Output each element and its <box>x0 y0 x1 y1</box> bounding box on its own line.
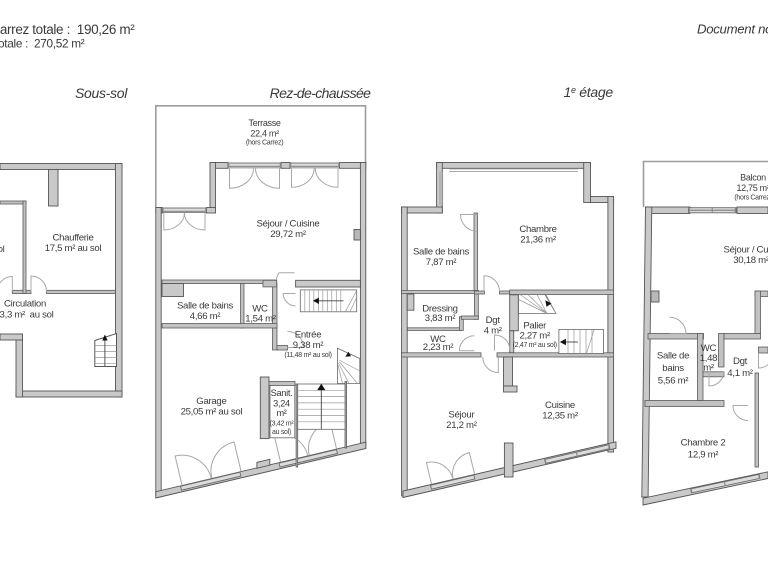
svg-text:(hors Carrez): (hors Carrez) <box>734 195 768 202</box>
svg-text:30,18 m²: 30,18 m² <box>733 255 768 266</box>
svg-text:4,1 m²: 4,1 m² <box>727 368 753 379</box>
svg-text:29,72 m²: 29,72 m² <box>270 229 307 240</box>
svg-text:25,05 m² au sol: 25,05 m² au sol <box>181 407 243 418</box>
svg-text:Sanit.: Sanit. <box>271 388 293 398</box>
svg-text:3,24: 3,24 <box>273 398 290 408</box>
svg-text:13,3 m² au sol: 13,3 m² au sol <box>0 309 54 320</box>
svg-text:(11,48 m² au sol): (11,48 m² au sol) <box>284 352 331 359</box>
svg-text:au sol): au sol) <box>272 429 291 436</box>
svg-text:5,56 m²: 5,56 m² <box>658 376 690 387</box>
svg-text:Dgt: Dgt <box>733 356 748 367</box>
svg-text:m²: m² <box>703 363 715 374</box>
svg-text:Rez-de-chaussée: Rez-de-chaussée <box>270 85 372 101</box>
svg-text:Chambre 2: Chambre 2 <box>681 438 726 449</box>
svg-text:Séjour / Cuisine: Séjour / Cuisine <box>257 219 320 230</box>
svg-text:m²: m² <box>276 408 286 418</box>
svg-text:12,9 m²: 12,9 m² <box>688 450 720 461</box>
svg-text:Salle de bains: Salle de bains <box>413 247 470 258</box>
svg-text:Séjour: Séjour <box>448 410 475 421</box>
svg-text:2,23 m²: 2,23 m² <box>423 342 455 353</box>
svg-text:Salle de: Salle de <box>657 351 689 362</box>
svg-text:3,83 m²: 3,83 m² <box>425 313 457 324</box>
svg-text:12,35 m²: 12,35 m² <box>542 411 579 422</box>
svg-text:9,38 m²: 9,38 m² <box>293 340 325 351</box>
svg-text:(2,47 m² au sol): (2,47 m² au sol) <box>513 342 557 349</box>
svg-text:Balcon: Balcon <box>740 173 766 183</box>
svg-text:9,8 m² au sol: 9,8 m² au sol <box>0 244 5 255</box>
svg-text:Garage: Garage <box>196 396 226 407</box>
svg-text:Chaufferie: Chaufferie <box>52 233 93 244</box>
svg-text:12,75 m²: 12,75 m² <box>736 183 768 193</box>
svg-text:1e étage: 1e étage <box>564 84 614 100</box>
svg-text:17,5 m² au sol: 17,5 m² au sol <box>45 243 102 254</box>
svg-text:Cuisine: Cuisine <box>545 400 575 411</box>
svg-text:(hors Carrez): (hors Carrez) <box>246 139 283 146</box>
svg-text:4,66 m²: 4,66 m² <box>190 311 222 322</box>
svg-text:7,87 m²: 7,87 m² <box>426 257 458 268</box>
svg-text:Chambre: Chambre <box>519 224 556 235</box>
svg-text:(3,42 m²: (3,42 m² <box>270 420 295 427</box>
svg-text:4 m²: 4 m² <box>484 326 503 337</box>
svg-text:2,27 m²: 2,27 m² <box>519 331 551 342</box>
svg-text:Surface Carrez totale : 190,2: Surface Carrez totale : 190,26 m² <box>0 22 135 37</box>
svg-text:21,36 m²: 21,36 m² <box>520 235 557 246</box>
svg-text:1,54 m²: 1,54 m² <box>245 314 277 325</box>
svg-text:Document non contractuel: Document non contractuel <box>697 22 768 37</box>
svg-text:Dgt: Dgt <box>486 315 501 326</box>
svg-text:21,2 m²: 21,2 m² <box>446 420 478 431</box>
svg-text:Séjour / Cuisine: Séjour / Cuisine <box>724 245 768 256</box>
svg-text:Circulation: Circulation <box>4 299 46 310</box>
svg-text:Sous-sol: Sous-sol <box>75 85 128 101</box>
svg-text:22,4 m²: 22,4 m² <box>250 129 279 139</box>
svg-text:Terrasse: Terrasse <box>249 118 281 128</box>
svg-text:Surface totale : 270,52 m²: Surface totale : 270,52 m² <box>0 37 85 51</box>
svg-text:bains: bains <box>662 363 684 374</box>
